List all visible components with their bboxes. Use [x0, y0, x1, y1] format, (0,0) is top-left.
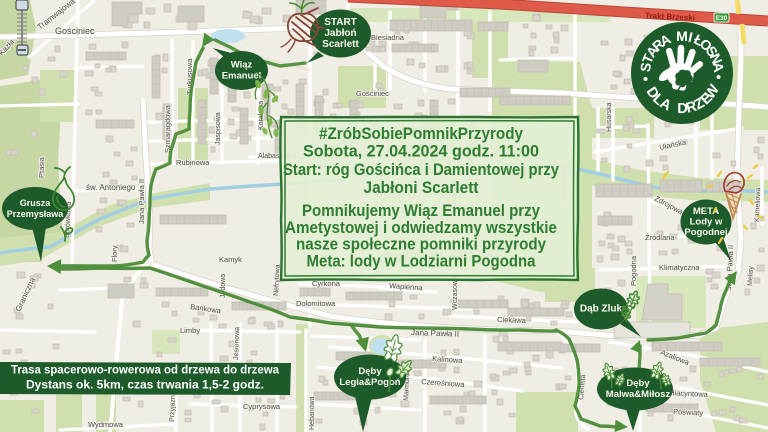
svg-text:Jana Pawła II: Jana Pawła II	[137, 179, 146, 224]
svg-text:Jabłoń: Jabłoń	[324, 28, 356, 39]
svg-text:Dystans ok. 5km, czas trwania: Dystans ok. 5km, czas trwania 1,5-2 godz…	[26, 380, 264, 392]
svg-text:Jesionowa: Jesionowa	[233, 327, 241, 360]
svg-text:Dęby: Dęby	[358, 366, 382, 377]
svg-text:Cyprysowa: Cyprysowa	[243, 402, 281, 411]
svg-text:Malwa&Miłosz: Malwa&Miłosz	[606, 389, 671, 400]
svg-text:Trasa spacerowo-rowerowa od dr: Trasa spacerowo-rowerowa od drzewa do dr…	[11, 365, 280, 377]
svg-text:Hebanowa: Hebanowa	[309, 396, 316, 430]
svg-text:Husarska: Husarska	[606, 102, 613, 132]
svg-text:Przemysława: Przemysława	[7, 209, 65, 219]
svg-text:Gościniec: Gościniec	[356, 89, 389, 98]
svg-text:Ciekawa: Ciekawa	[497, 315, 527, 325]
svg-text:Grusza: Grusza	[20, 198, 52, 208]
svg-text:nasze społeczne pomniki przyro: nasze społeczne pomniki przyrody	[296, 236, 547, 254]
svg-text:Melisy: Melisy	[747, 265, 755, 286]
svg-text:Pogodnej: Pogodnej	[684, 227, 727, 238]
svg-text:Jabłoni Scarlett: Jabłoni Scarlett	[364, 179, 479, 197]
svg-text:Wydmowa: Wydmowa	[88, 420, 124, 429]
svg-text:Jaspisowa: Jaspisowa	[215, 112, 222, 145]
svg-text:Klimatyczna: Klimatyczna	[659, 263, 700, 272]
svg-text:Scarlett: Scarlett	[322, 39, 359, 50]
svg-text:Dąb Zluk: Dąb Zluk	[580, 304, 623, 315]
svg-text:św. Antoniego: św. Antoniego	[86, 183, 136, 192]
svg-text:Flory: Flory	[110, 245, 119, 262]
svg-text:Dęby: Dęby	[626, 378, 650, 389]
svg-text:Ptasia: Ptasia	[37, 156, 46, 178]
svg-text:Pogodna: Pogodna	[629, 255, 638, 286]
svg-text:Start: róg Gościńca i Damiento: Start: róg Gościńca i Damientowej przy	[283, 161, 560, 179]
svg-text:Poświaty: Poświaty	[673, 407, 704, 418]
svg-text:Wczasowa: Wczasowa	[452, 276, 459, 310]
svg-text:Pomnikujemy Wiąz Emanuel przy: Pomnikujemy Wiąz Emanuel przy	[302, 202, 541, 220]
svg-text:Biesiadna: Biesiadna	[371, 33, 405, 42]
svg-text:Rubinowa: Rubinowa	[176, 158, 210, 167]
svg-text:Meta: lody w Lodziarni Pogodna: Meta: lody w Lodziarni Pogodna	[307, 253, 537, 271]
svg-text:Limby: Limby	[180, 326, 200, 335]
svg-text:Dolomitowa: Dolomitowa	[296, 299, 336, 308]
svg-text:Przyjazna: Przyjazna	[169, 391, 177, 422]
svg-text:Lody w: Lody w	[690, 217, 723, 228]
svg-text:#ZróbSobiePomnikPrzyrody: #ZróbSobiePomnikPrzyrody	[319, 125, 524, 143]
svg-text:START: START	[324, 17, 357, 28]
svg-text:Kamyk: Kamyk	[219, 255, 242, 264]
svg-text:Gościniec: Gościniec	[55, 26, 95, 36]
svg-text:E30: E30	[716, 15, 728, 22]
svg-text:Sobota, 27.04.2024 godz. 11:00: Sobota, 27.04.2024 godz. 11:00	[303, 143, 539, 161]
svg-text:Legia&Pogoń: Legia&Pogoń	[339, 377, 400, 388]
svg-text:Ametystowej i odwiedzamy wszys: Ametystowej i odwiedzamy wszystkie	[285, 219, 557, 237]
svg-text:Wiąz: Wiąz	[231, 60, 253, 71]
svg-text:Źródlana: Źródlana	[645, 233, 675, 242]
svg-text:M: M	[676, 28, 688, 44]
